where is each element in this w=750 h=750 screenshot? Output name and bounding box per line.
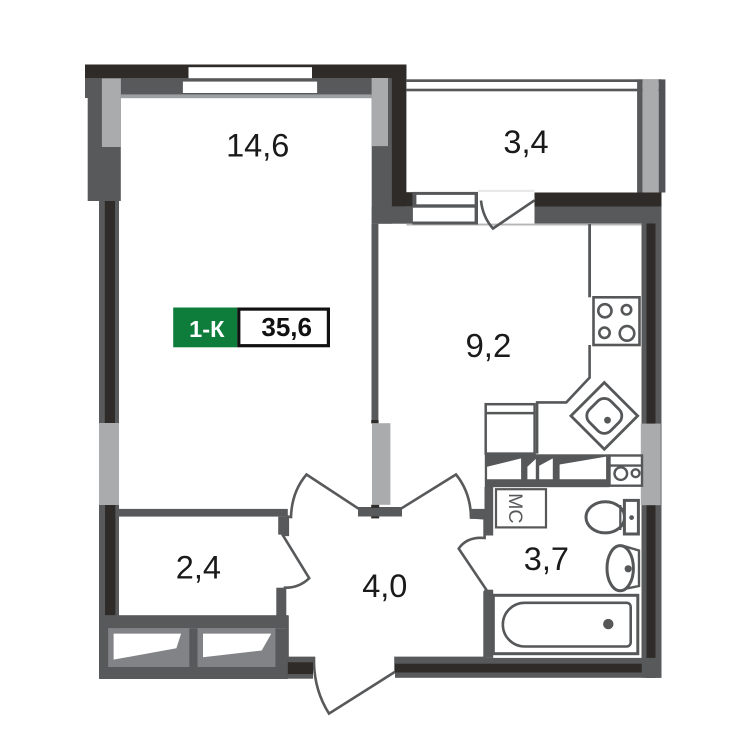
- svg-text:3,7: 3,7: [524, 541, 569, 577]
- svg-text:МС: МС: [504, 493, 526, 523]
- svg-text:3,4: 3,4: [503, 124, 548, 160]
- svg-text:4,0: 4,0: [362, 568, 407, 604]
- svg-text:35,6: 35,6: [261, 312, 312, 342]
- svg-text:14,6: 14,6: [226, 127, 289, 163]
- svg-text:1-К: 1-К: [189, 316, 225, 342]
- svg-text:2,4: 2,4: [176, 549, 221, 585]
- svg-text:9,2: 9,2: [465, 327, 511, 364]
